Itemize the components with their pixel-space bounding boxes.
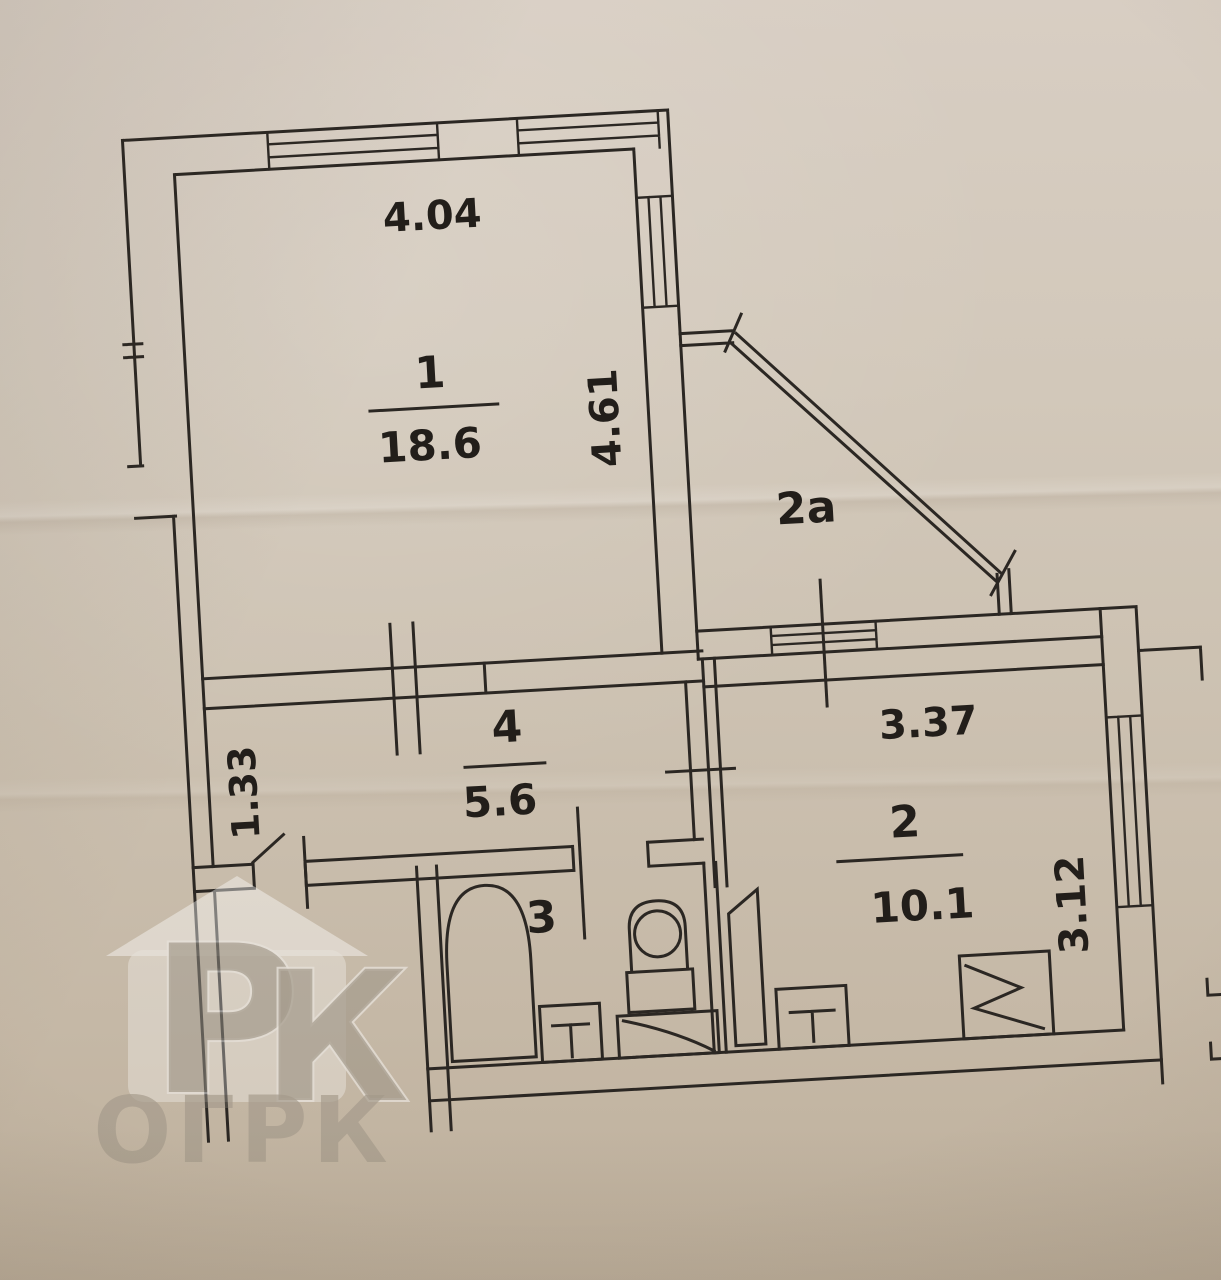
- room1-number: 1: [413, 347, 446, 400]
- door-leaf-kitchen: [727, 889, 766, 1045]
- fraction-line-room1: [370, 404, 498, 411]
- bathtub-icon: [443, 883, 537, 1061]
- fraction-line-room4: [465, 763, 545, 767]
- dim-room2-width: 3.37: [878, 698, 979, 749]
- wall-loggia-kitchen: [697, 609, 1103, 687]
- sink-bathroom-icon: [539, 1003, 602, 1062]
- door-tick-bathroom: [577, 808, 584, 938]
- exterior-wall-right: [1100, 607, 1163, 1085]
- room4-area: 5.6: [461, 774, 538, 827]
- floor-plan-canvas: 4.04 1 18.6 4.61 2а 3.37 2 10.1 3.12 4 5…: [0, 0, 1221, 1280]
- watermark: Р К ОГРК: [93, 876, 409, 1184]
- door-tick-kitchen: [667, 768, 735, 772]
- loggia-glazing-diagonal: [679, 300, 1018, 631]
- loggia-label: 2а: [775, 481, 838, 535]
- window-room2-icon: [1106, 715, 1153, 907]
- door-jambs-room1: [390, 623, 420, 754]
- washing-machine-icon: [617, 1011, 719, 1059]
- wall-bathroom-left: [416, 866, 451, 1131]
- fraction-line-room2: [838, 855, 962, 862]
- room3-number: 3: [525, 891, 558, 944]
- watermark-caption: ОГРК: [93, 1077, 392, 1184]
- exterior-wall-bottom: [428, 1028, 1162, 1101]
- wall-bathroom-right: [704, 862, 727, 1052]
- sink-kitchen-icon: [776, 985, 849, 1049]
- dim-hall-width: 1.33: [219, 745, 268, 841]
- stove-icon: [959, 951, 1053, 1039]
- room2-area: 10.1: [869, 878, 975, 933]
- room1-area: 18.6: [377, 418, 483, 473]
- toilet-bowl-icon: [633, 910, 681, 958]
- walls-hall-kitchen: [684, 658, 727, 887]
- dim-room1-depth: 4.61: [580, 367, 631, 468]
- dim-room2-depth: 3.12: [1047, 854, 1098, 955]
- wall-room1-room4: [203, 651, 704, 709]
- room4-number: 4: [490, 701, 523, 754]
- dim-room1-width: 4.04: [382, 191, 483, 242]
- room2-number: 2: [888, 796, 921, 849]
